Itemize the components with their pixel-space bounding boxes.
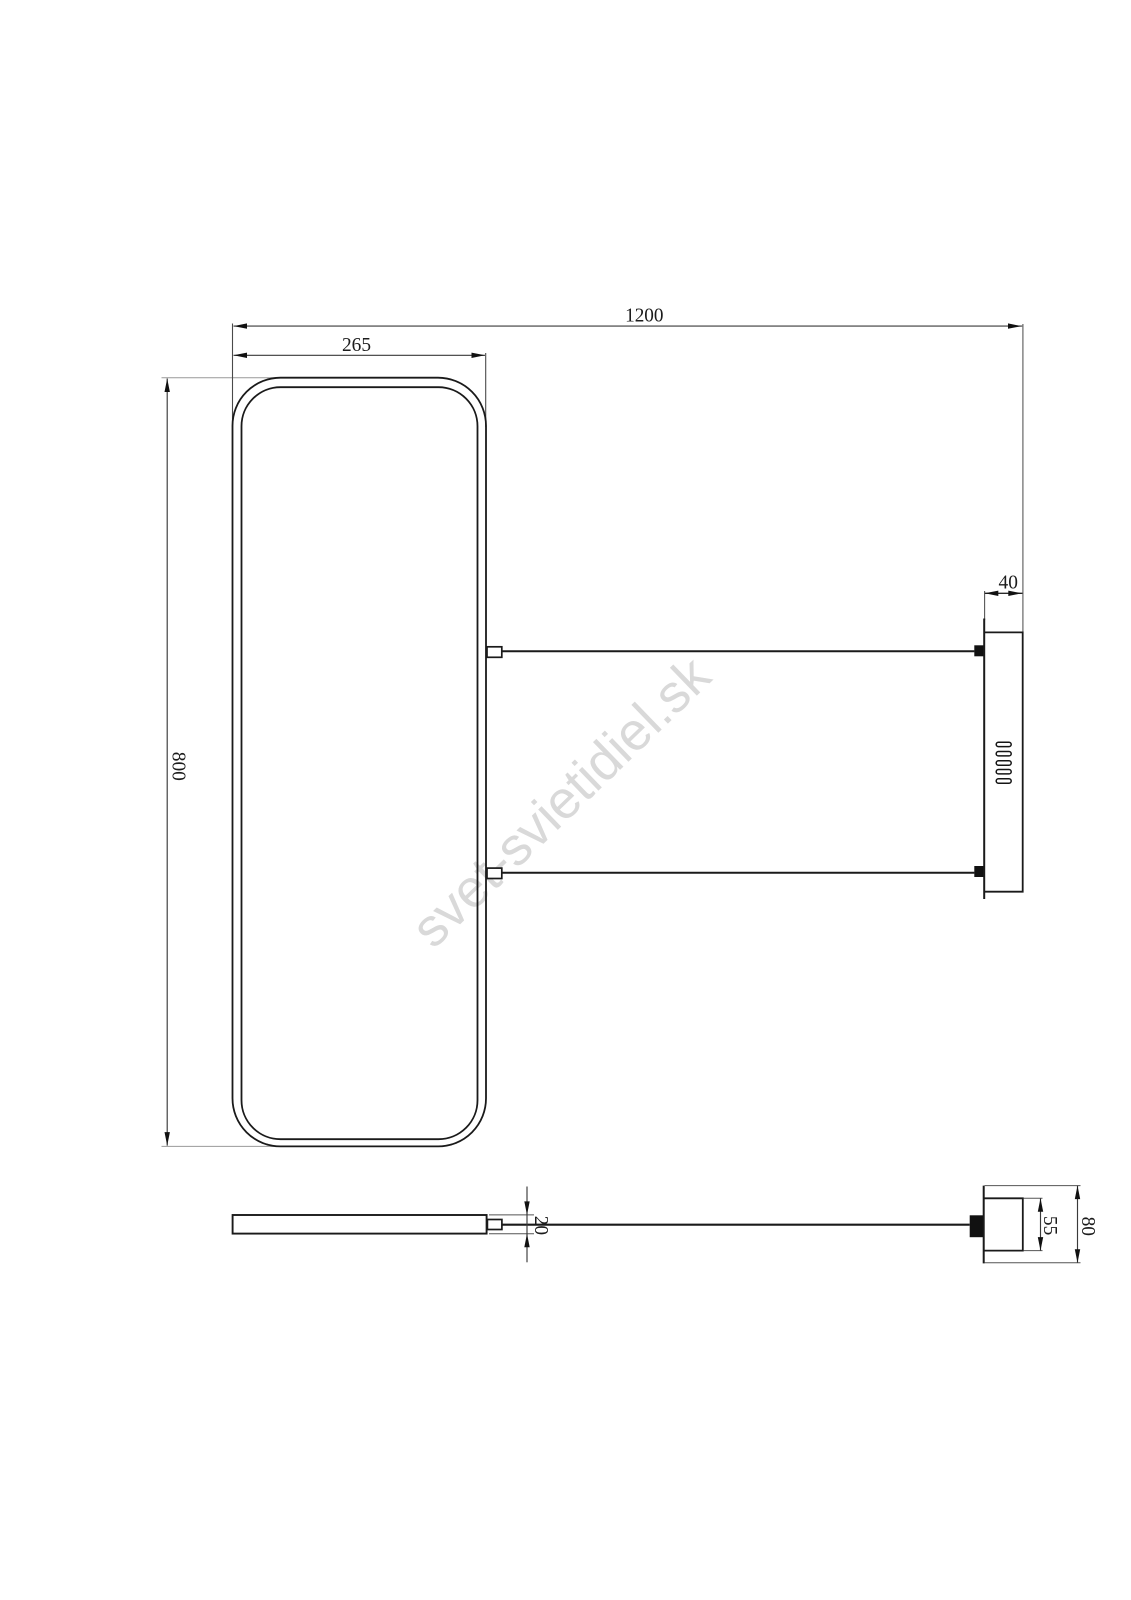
svg-text:40: 40 bbox=[999, 571, 1019, 593]
svg-text:265: 265 bbox=[342, 334, 371, 356]
svg-text:20: 20 bbox=[530, 1216, 552, 1236]
svg-text:800: 800 bbox=[167, 752, 189, 781]
svg-text:80: 80 bbox=[1077, 1217, 1099, 1237]
svg-text:1200: 1200 bbox=[625, 305, 664, 326]
svg-text:55: 55 bbox=[1039, 1216, 1061, 1236]
